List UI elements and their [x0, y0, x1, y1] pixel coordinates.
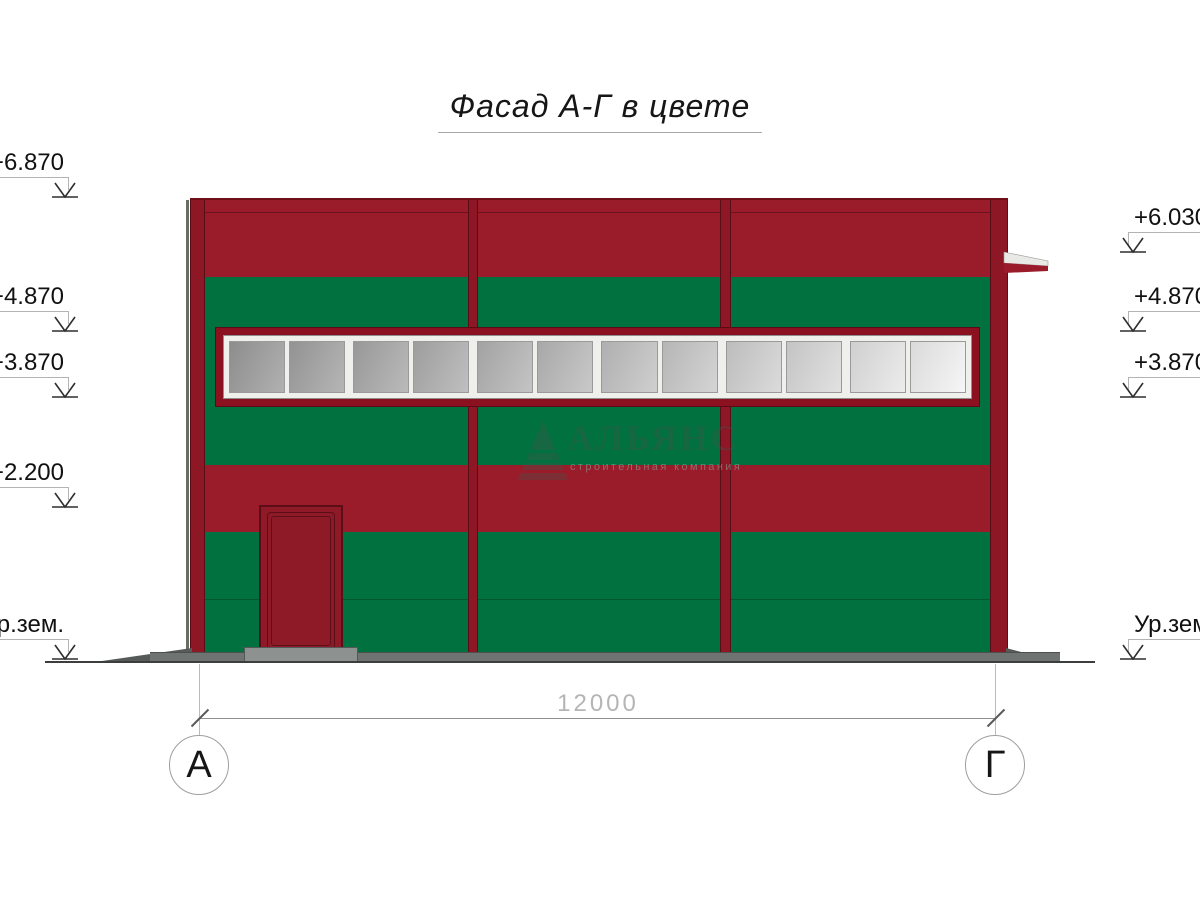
page-title: Фасад А-Г в цвете — [438, 88, 763, 133]
axis-label-a: А — [186, 744, 211, 787]
door-threshold — [244, 647, 358, 662]
window-pane — [662, 341, 718, 393]
window-glass-strip — [229, 341, 966, 393]
elevation-mark-right-ground: Ур.зем. — [1120, 611, 1200, 661]
door-leaf-panel — [271, 516, 331, 646]
window-pane — [477, 341, 533, 393]
elevation-value: +3.870 — [1134, 349, 1200, 377]
dimension-line — [200, 718, 996, 719]
facade-drawing: Фасад А-Г в цвете — [0, 0, 1200, 900]
elevation-mark-left-3870: +3.870 — [0, 349, 80, 399]
elevation-mark-right-4870: +4.870 — [1120, 283, 1200, 333]
elevation-value: Ур.зем. — [0, 611, 64, 639]
canopy — [1002, 250, 1052, 276]
pilaster-mid-1 — [468, 200, 478, 654]
elevation-mark-left-6870: +6.870 — [0, 149, 80, 199]
elevation-arrow-icon — [52, 644, 78, 661]
entrance-door — [259, 505, 343, 654]
window-pane — [229, 341, 285, 393]
window-white-frame — [223, 335, 972, 399]
building-facade — [190, 198, 1008, 652]
axis-label-g: Г — [985, 744, 1006, 787]
elevation-arrow-icon — [1120, 382, 1146, 399]
elevation-mark-left-2200: +2.200 — [0, 459, 80, 509]
elevation-mark-right-6030: +6.030 — [1120, 204, 1200, 254]
axis-circle-g: Г — [965, 735, 1025, 795]
elevation-value: +6.870 — [0, 149, 64, 177]
window-pane — [850, 341, 906, 393]
elevation-arrow-icon — [52, 382, 78, 399]
dimension-label: 12000 — [200, 690, 996, 718]
elevation-value: +4.870 — [1134, 283, 1200, 311]
window-pane — [413, 341, 469, 393]
elevation-arrow-icon — [52, 492, 78, 509]
ground-line — [45, 661, 1095, 663]
window-pane — [537, 341, 593, 393]
elevation-arrow-icon — [1120, 644, 1146, 661]
window-pane — [601, 341, 657, 393]
elevation-value: Ур.зем. — [1134, 611, 1200, 639]
building-left-edge — [186, 200, 189, 656]
pilaster-mid-2 — [720, 200, 731, 654]
window-pane — [726, 341, 782, 393]
elevation-arrow-icon — [1120, 316, 1146, 333]
pilaster-left — [190, 200, 205, 654]
door-leaf — [267, 512, 335, 650]
elevation-mark-right-3870: +3.870 — [1120, 349, 1200, 399]
elevation-arrow-icon — [52, 182, 78, 199]
elevation-arrow-icon — [1120, 237, 1146, 254]
window-ribbon-frame — [215, 327, 980, 407]
elevation-value: +4.870 — [0, 283, 64, 311]
elevation-mark-left-4870: +4.870 — [0, 283, 80, 333]
window-pane — [353, 341, 409, 393]
title-container: Фасад А-Г в цвете — [0, 88, 1200, 133]
axis-circle-a: А — [169, 735, 229, 795]
elevation-value: +2.200 — [0, 459, 64, 487]
parapet-seam — [205, 212, 990, 213]
window-pane — [786, 341, 842, 393]
elevation-value: +6.030 — [1134, 204, 1200, 232]
window-pane — [910, 341, 966, 393]
elevation-mark-left-ground: Ур.зем. — [0, 611, 80, 661]
elevation-arrow-icon — [52, 316, 78, 333]
elevation-value: +3.870 — [0, 349, 64, 377]
window-pane — [289, 341, 345, 393]
